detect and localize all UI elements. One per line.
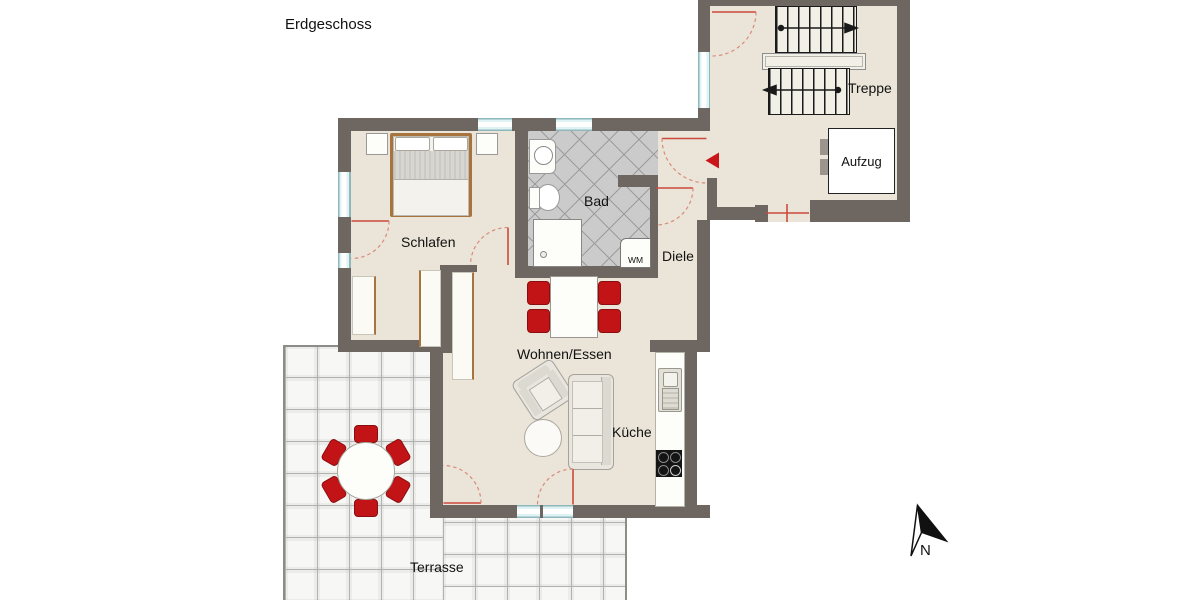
- kitchen-sink-basin: [663, 372, 678, 387]
- dining-table: [550, 276, 598, 338]
- wall-segment: [810, 200, 910, 222]
- wall-segment: [573, 505, 617, 518]
- dining-chair: [598, 309, 621, 333]
- wall-segment: [338, 118, 351, 352]
- toilet-tank: [529, 187, 540, 209]
- window: [556, 118, 592, 131]
- window: [698, 52, 710, 108]
- elevator-door: [820, 139, 828, 155]
- wall-segment: [683, 352, 697, 505]
- bed-pillow: [395, 137, 430, 151]
- nightstand: [366, 133, 388, 155]
- cooktop: [656, 450, 682, 477]
- sofa-cushions: [572, 381, 603, 463]
- room-label-wohnen-essen: Wohnen/Essen: [517, 346, 612, 362]
- page-title: Erdgeschoss: [285, 16, 372, 33]
- window: [478, 118, 512, 131]
- dining-chair: [598, 281, 621, 305]
- window: [338, 253, 351, 268]
- bed: [390, 133, 472, 217]
- burner: [670, 452, 681, 463]
- terrace-table: [337, 442, 395, 500]
- wall-segment: [755, 205, 768, 222]
- stair-flight-lower: [768, 68, 850, 115]
- floor-plan: Aufzug WM: [0, 0, 1200, 600]
- bathroom-sink: [534, 146, 553, 165]
- room-label-schlafen: Schlafen: [401, 234, 455, 250]
- burner: [670, 465, 681, 476]
- washing-machine: WM: [620, 238, 651, 268]
- elevator-label: Aufzug: [841, 154, 881, 169]
- elevator-door: [820, 159, 828, 175]
- room-label-diele: Diele: [662, 248, 694, 264]
- wall-segment: [430, 345, 443, 518]
- window: [338, 172, 351, 217]
- bed-pillow: [433, 137, 468, 151]
- wall-segment: [650, 185, 658, 266]
- bed-blanket: [394, 151, 468, 180]
- shower-drain: [540, 251, 547, 258]
- wall-segment: [338, 118, 710, 131]
- closet: [419, 270, 441, 347]
- wall-segment: [707, 178, 717, 220]
- terrace-chair: [354, 499, 378, 517]
- window: [543, 505, 573, 518]
- wall-segment: [650, 340, 697, 352]
- sofa: [568, 374, 614, 470]
- washing-machine-label: WM: [628, 255, 643, 267]
- wall-segment: [897, 0, 910, 222]
- dining-chair: [527, 281, 550, 305]
- room-label-bad: Bad: [584, 193, 609, 209]
- burner: [658, 452, 669, 463]
- stair-flight-upper: [775, 6, 857, 53]
- stairwell-door-gap: [765, 200, 810, 222]
- compass-north-label: N: [920, 542, 931, 559]
- nightstand: [476, 133, 498, 155]
- burner: [658, 465, 669, 476]
- wall-segment: [618, 175, 658, 187]
- window: [517, 505, 540, 518]
- wall-segment: [515, 131, 528, 267]
- wall-segment: [697, 220, 710, 352]
- coffee-table: [524, 419, 562, 457]
- closet: [452, 272, 474, 380]
- stairs-label: Treppe: [848, 80, 892, 96]
- room-label-kueche: Küche: [612, 424, 652, 440]
- elevator-box: Aufzug: [828, 128, 895, 194]
- terrace-chair: [354, 425, 378, 443]
- wall-segment: [430, 505, 520, 518]
- shower: [533, 219, 582, 267]
- room-label-terrasse: Terrasse: [410, 559, 464, 575]
- wall-segment: [698, 0, 710, 14]
- kitchen-sink-drainer: [662, 388, 679, 410]
- closet: [352, 276, 376, 335]
- kitchen-sink-unit: [658, 368, 682, 412]
- dining-chair: [527, 309, 550, 333]
- terrace-paving-lower: [443, 518, 627, 600]
